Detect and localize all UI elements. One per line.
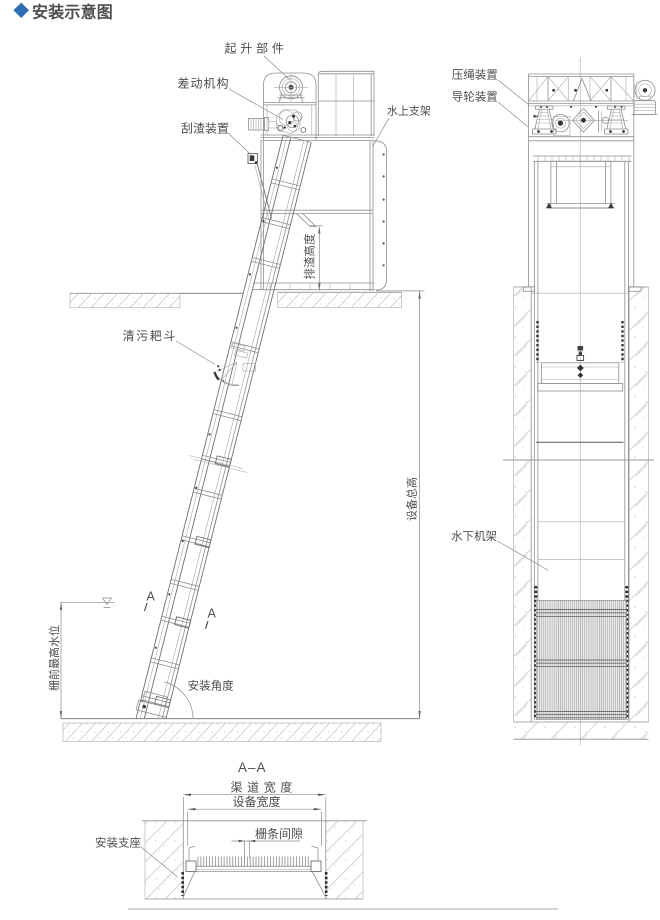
svg-text:栅条间隙: 栅条间隙: [255, 826, 303, 841]
svg-text:安装角度: 安装角度: [188, 679, 234, 693]
svg-text:设备宽度: 设备宽度: [233, 794, 281, 809]
svg-text:清污耙斗: 清污耙斗: [123, 329, 177, 343]
svg-text:水上支架: 水上支架: [387, 105, 431, 118]
svg-text:A: A: [208, 607, 217, 621]
svg-text:差动机构: 差动机构: [178, 76, 230, 91]
svg-text:A–A: A–A: [238, 760, 267, 775]
svg-text:渠道宽度: 渠道宽度: [231, 780, 297, 795]
svg-text:压绳装置: 压绳装置: [452, 68, 498, 82]
svg-text:安装示意图: 安装示意图: [32, 2, 113, 21]
svg-text:A: A: [147, 589, 156, 603]
svg-text:栅前最高水位: 栅前最高水位: [47, 625, 61, 691]
svg-text:刮渣装置: 刮渣装置: [181, 122, 229, 136]
svg-text:设备总高: 设备总高: [405, 477, 419, 521]
svg-text:起升部件: 起升部件: [225, 41, 288, 56]
svg-text:排渣高度: 排渣高度: [303, 233, 317, 279]
svg-text:导轮装置: 导轮装置: [452, 90, 498, 104]
svg-text:水下机架: 水下机架: [451, 529, 497, 543]
svg-text:安装支座: 安装支座: [95, 836, 141, 850]
